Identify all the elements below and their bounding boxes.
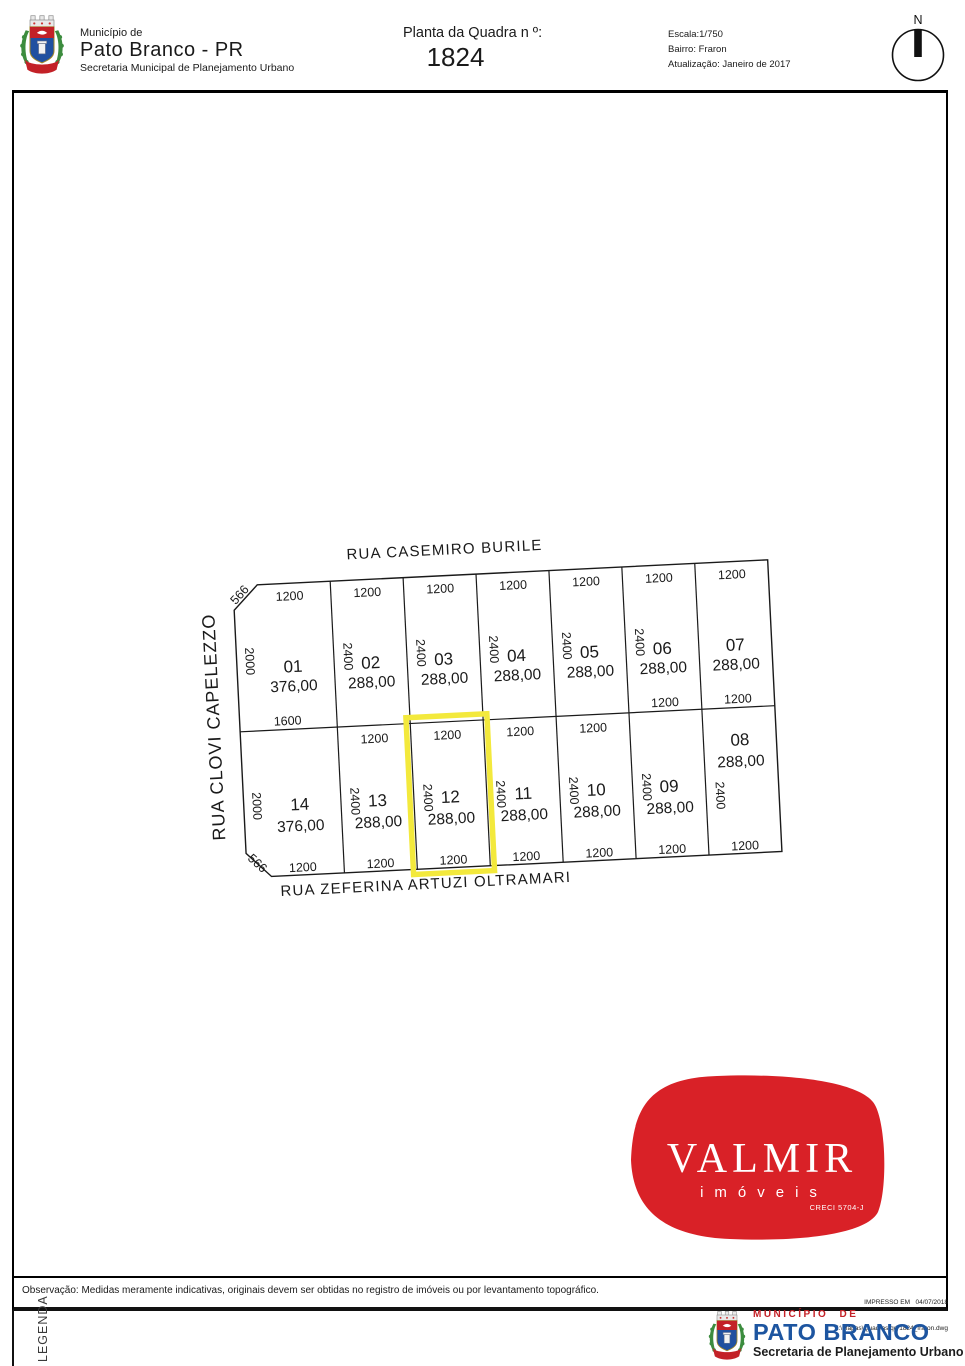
dim-label: 2400 — [566, 776, 581, 805]
dim-label: 1200 — [433, 728, 462, 743]
lot-area-07: 288,00 — [712, 655, 761, 674]
plan-title: Planta da Quadra n º: — [403, 25, 553, 41]
lot-area-11: 288,00 — [500, 806, 549, 825]
lot-area-01: 376,00 — [270, 677, 319, 696]
observation-strip: Observação: Medidas meramente indicativa… — [12, 1278, 948, 1311]
dim-label: 2400 — [712, 781, 727, 810]
dim-label: 2400 — [347, 787, 362, 816]
lot-number-05: 05 — [580, 642, 600, 662]
dim-label: 1200 — [426, 581, 455, 596]
dim-label: 1200 — [572, 574, 601, 589]
municipality-block: Município de Pato Branco - PR Secretaria… — [80, 27, 294, 75]
lot-area-06: 288,00 — [639, 659, 688, 678]
lot-area-12: 288,00 — [427, 809, 476, 828]
dim-label: 1200 — [366, 856, 395, 871]
lot-number-11: 11 — [514, 784, 533, 804]
street-name-left: RUA CLOVI CAPELEZZO — [198, 613, 229, 841]
block-group: 12001600200056601376,001200240002288,001… — [195, 526, 783, 903]
updated-text: Atualização: Janeiro de 2017 — [668, 57, 791, 72]
lot-area-10: 288,00 — [573, 802, 622, 821]
lot-number-09: 09 — [659, 776, 679, 796]
lot-number-12: 12 — [440, 787, 460, 807]
valmir-logo: VALMIRimóveisCRECI 5704-J — [631, 1075, 884, 1239]
dim-label: 1200 — [506, 724, 535, 739]
lot-number-04: 04 — [507, 646, 527, 666]
left-border-rail — [12, 1311, 14, 1366]
footer-logo-line2: PATO BRANCO — [753, 1321, 964, 1344]
block-number: 1824 — [403, 43, 508, 71]
lot-area-13: 288,00 — [354, 813, 403, 832]
dim-label: 2400 — [413, 639, 428, 668]
compass-needle — [914, 29, 922, 57]
dim-label: 1200 — [512, 849, 541, 864]
lot-area-03: 288,00 — [421, 670, 470, 689]
dim-label: 1200 — [275, 589, 304, 604]
lot-number-06: 06 — [652, 639, 672, 659]
legend-label: LEGENDA — [36, 1295, 50, 1362]
dim-label: 2400 — [340, 642, 355, 671]
dim-label: 2400 — [420, 784, 435, 813]
dim-label: 2400 — [486, 635, 501, 664]
scale-text: Escala:1/750 — [668, 27, 791, 42]
lot-area-02: 288,00 — [348, 673, 397, 692]
printed-date: IMPRESSO EM 04/07/2018 — [835, 1299, 948, 1308]
dim-label: 1200 — [353, 585, 382, 600]
lot-number-08: 08 — [730, 730, 750, 750]
lot-number-03: 03 — [434, 649, 454, 669]
plan-title-block: Planta da Quadra n º: 1824 — [403, 25, 553, 71]
street-name-top: RUA CASEMIRO BURILE — [346, 537, 543, 564]
dim-label: 1200 — [585, 845, 614, 860]
dim-label: 1600 — [273, 713, 302, 728]
dim-label: 1200 — [731, 838, 760, 853]
lot-area-04: 288,00 — [493, 666, 542, 685]
north-compass-icon: N — [886, 6, 952, 88]
lot-number-07: 07 — [725, 635, 745, 655]
dim-label: 1200 — [645, 571, 674, 586]
observation-text: Observação: Medidas meramente indicativa… — [22, 1285, 599, 1296]
dim-label: 1200 — [439, 852, 468, 867]
pato-branco-coat-of-arms — [16, 8, 68, 80]
dim-label: 1200 — [651, 695, 680, 710]
dim-label: 2000 — [249, 792, 264, 821]
dim-label: 2000 — [242, 647, 257, 676]
dim-label: 2400 — [632, 628, 647, 657]
footer-logo: MUNICÍPIO DE PATO BRANCO Secretaria de P… — [753, 1309, 964, 1359]
lot-number-13: 13 — [368, 791, 388, 811]
dim-label: 1200 — [724, 691, 753, 706]
dim-label: 1200 — [658, 842, 687, 857]
lot-area-09: 288,00 — [646, 799, 695, 818]
dim-label: 2400 — [639, 773, 654, 802]
dim-label: 1200 — [360, 731, 389, 746]
valmir-logo-tagline: imóveis — [700, 1184, 828, 1201]
dim-label: 1200 — [579, 720, 608, 735]
lot-area-08: 288,00 — [717, 752, 766, 771]
municipality-name: Pato Branco - PR — [80, 40, 294, 61]
secretariat-name: Secretaria Municipal de Planejamento Urb… — [80, 62, 294, 75]
dim-label: 1200 — [289, 860, 318, 875]
block-map: 12001600200056601376,001200240002288,001… — [12, 90, 948, 1278]
plan-info-block: Escala:1/750 Bairro: Fraron Atualização:… — [668, 27, 791, 72]
north-label: N — [913, 13, 922, 27]
dim-label: 2400 — [493, 780, 508, 809]
valmir-logo-name: VALMIR — [667, 1136, 857, 1182]
lot-number-02: 02 — [361, 653, 381, 673]
footer-coat-of-arms — [705, 1305, 749, 1365]
lot-number-01: 01 — [283, 657, 303, 677]
valmir-creci: CRECI 5704-J — [810, 1203, 864, 1212]
lot-area-14: 376,00 — [277, 817, 326, 836]
district-text: Bairro: Fraron — [668, 42, 791, 57]
lot-number-14: 14 — [290, 795, 310, 815]
dim-label: 1200 — [718, 567, 747, 582]
footer-logo-line3: Secretaria de Planejamento Urbano — [753, 1345, 964, 1359]
dim-label: 1200 — [499, 578, 528, 593]
dim-label: 2400 — [559, 632, 574, 661]
lot-area-05: 288,00 — [566, 662, 615, 681]
lot-number-10: 10 — [586, 780, 606, 800]
